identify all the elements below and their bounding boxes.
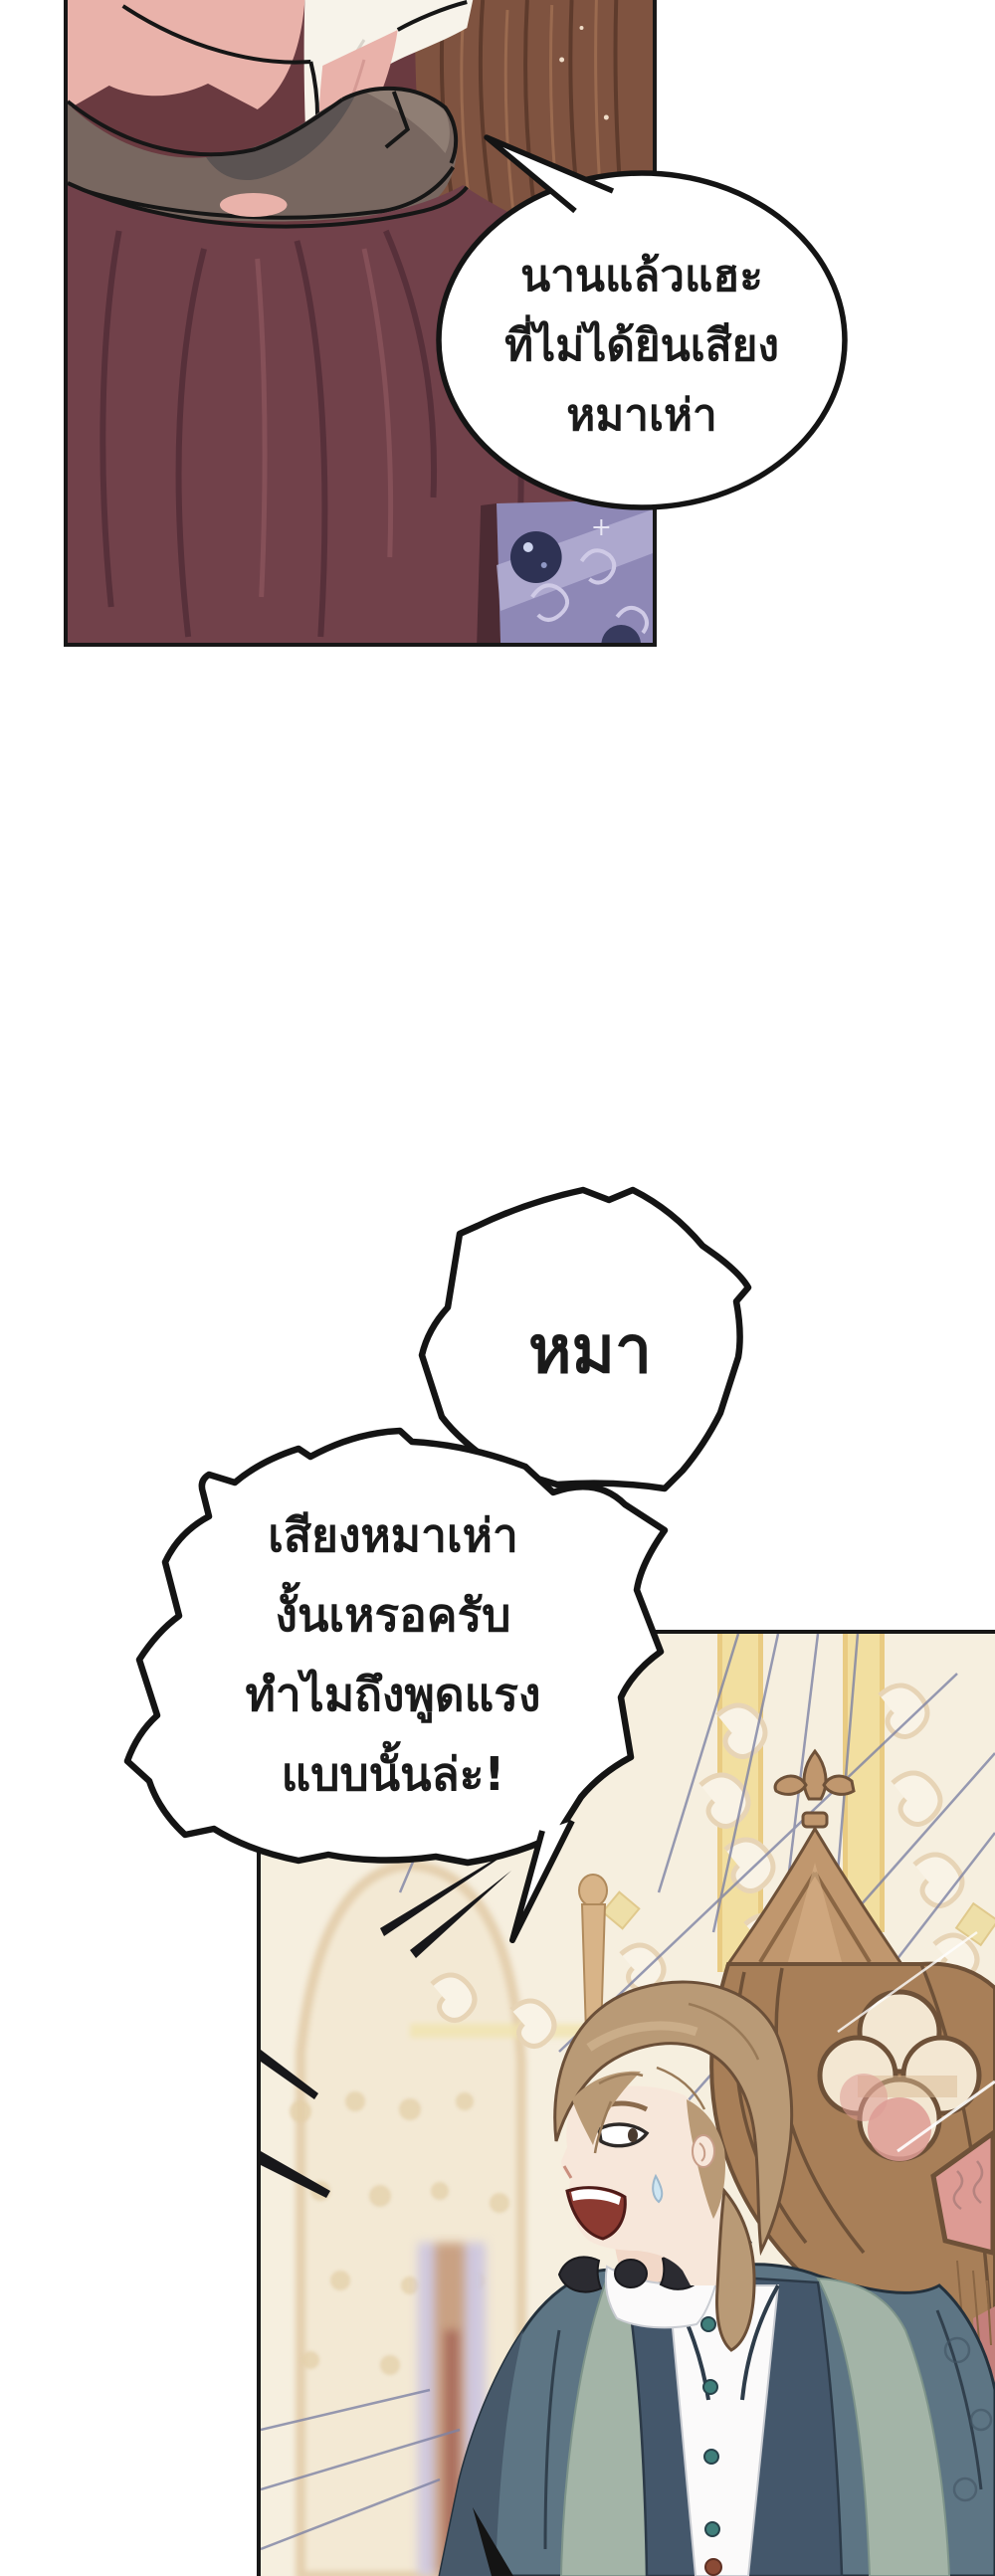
- brown-button: [705, 2559, 721, 2575]
- skin-gap: [220, 193, 288, 217]
- comic-page: นานแล้วแฮะ ที่ไม่ได้ยินเสียง หมาเห่า หมา…: [0, 0, 995, 2576]
- speech-bubble-top: [428, 119, 866, 527]
- pupil: [628, 2128, 638, 2142]
- speech-bubble-reply: [124, 1423, 692, 1955]
- navy-orb: [510, 531, 562, 583]
